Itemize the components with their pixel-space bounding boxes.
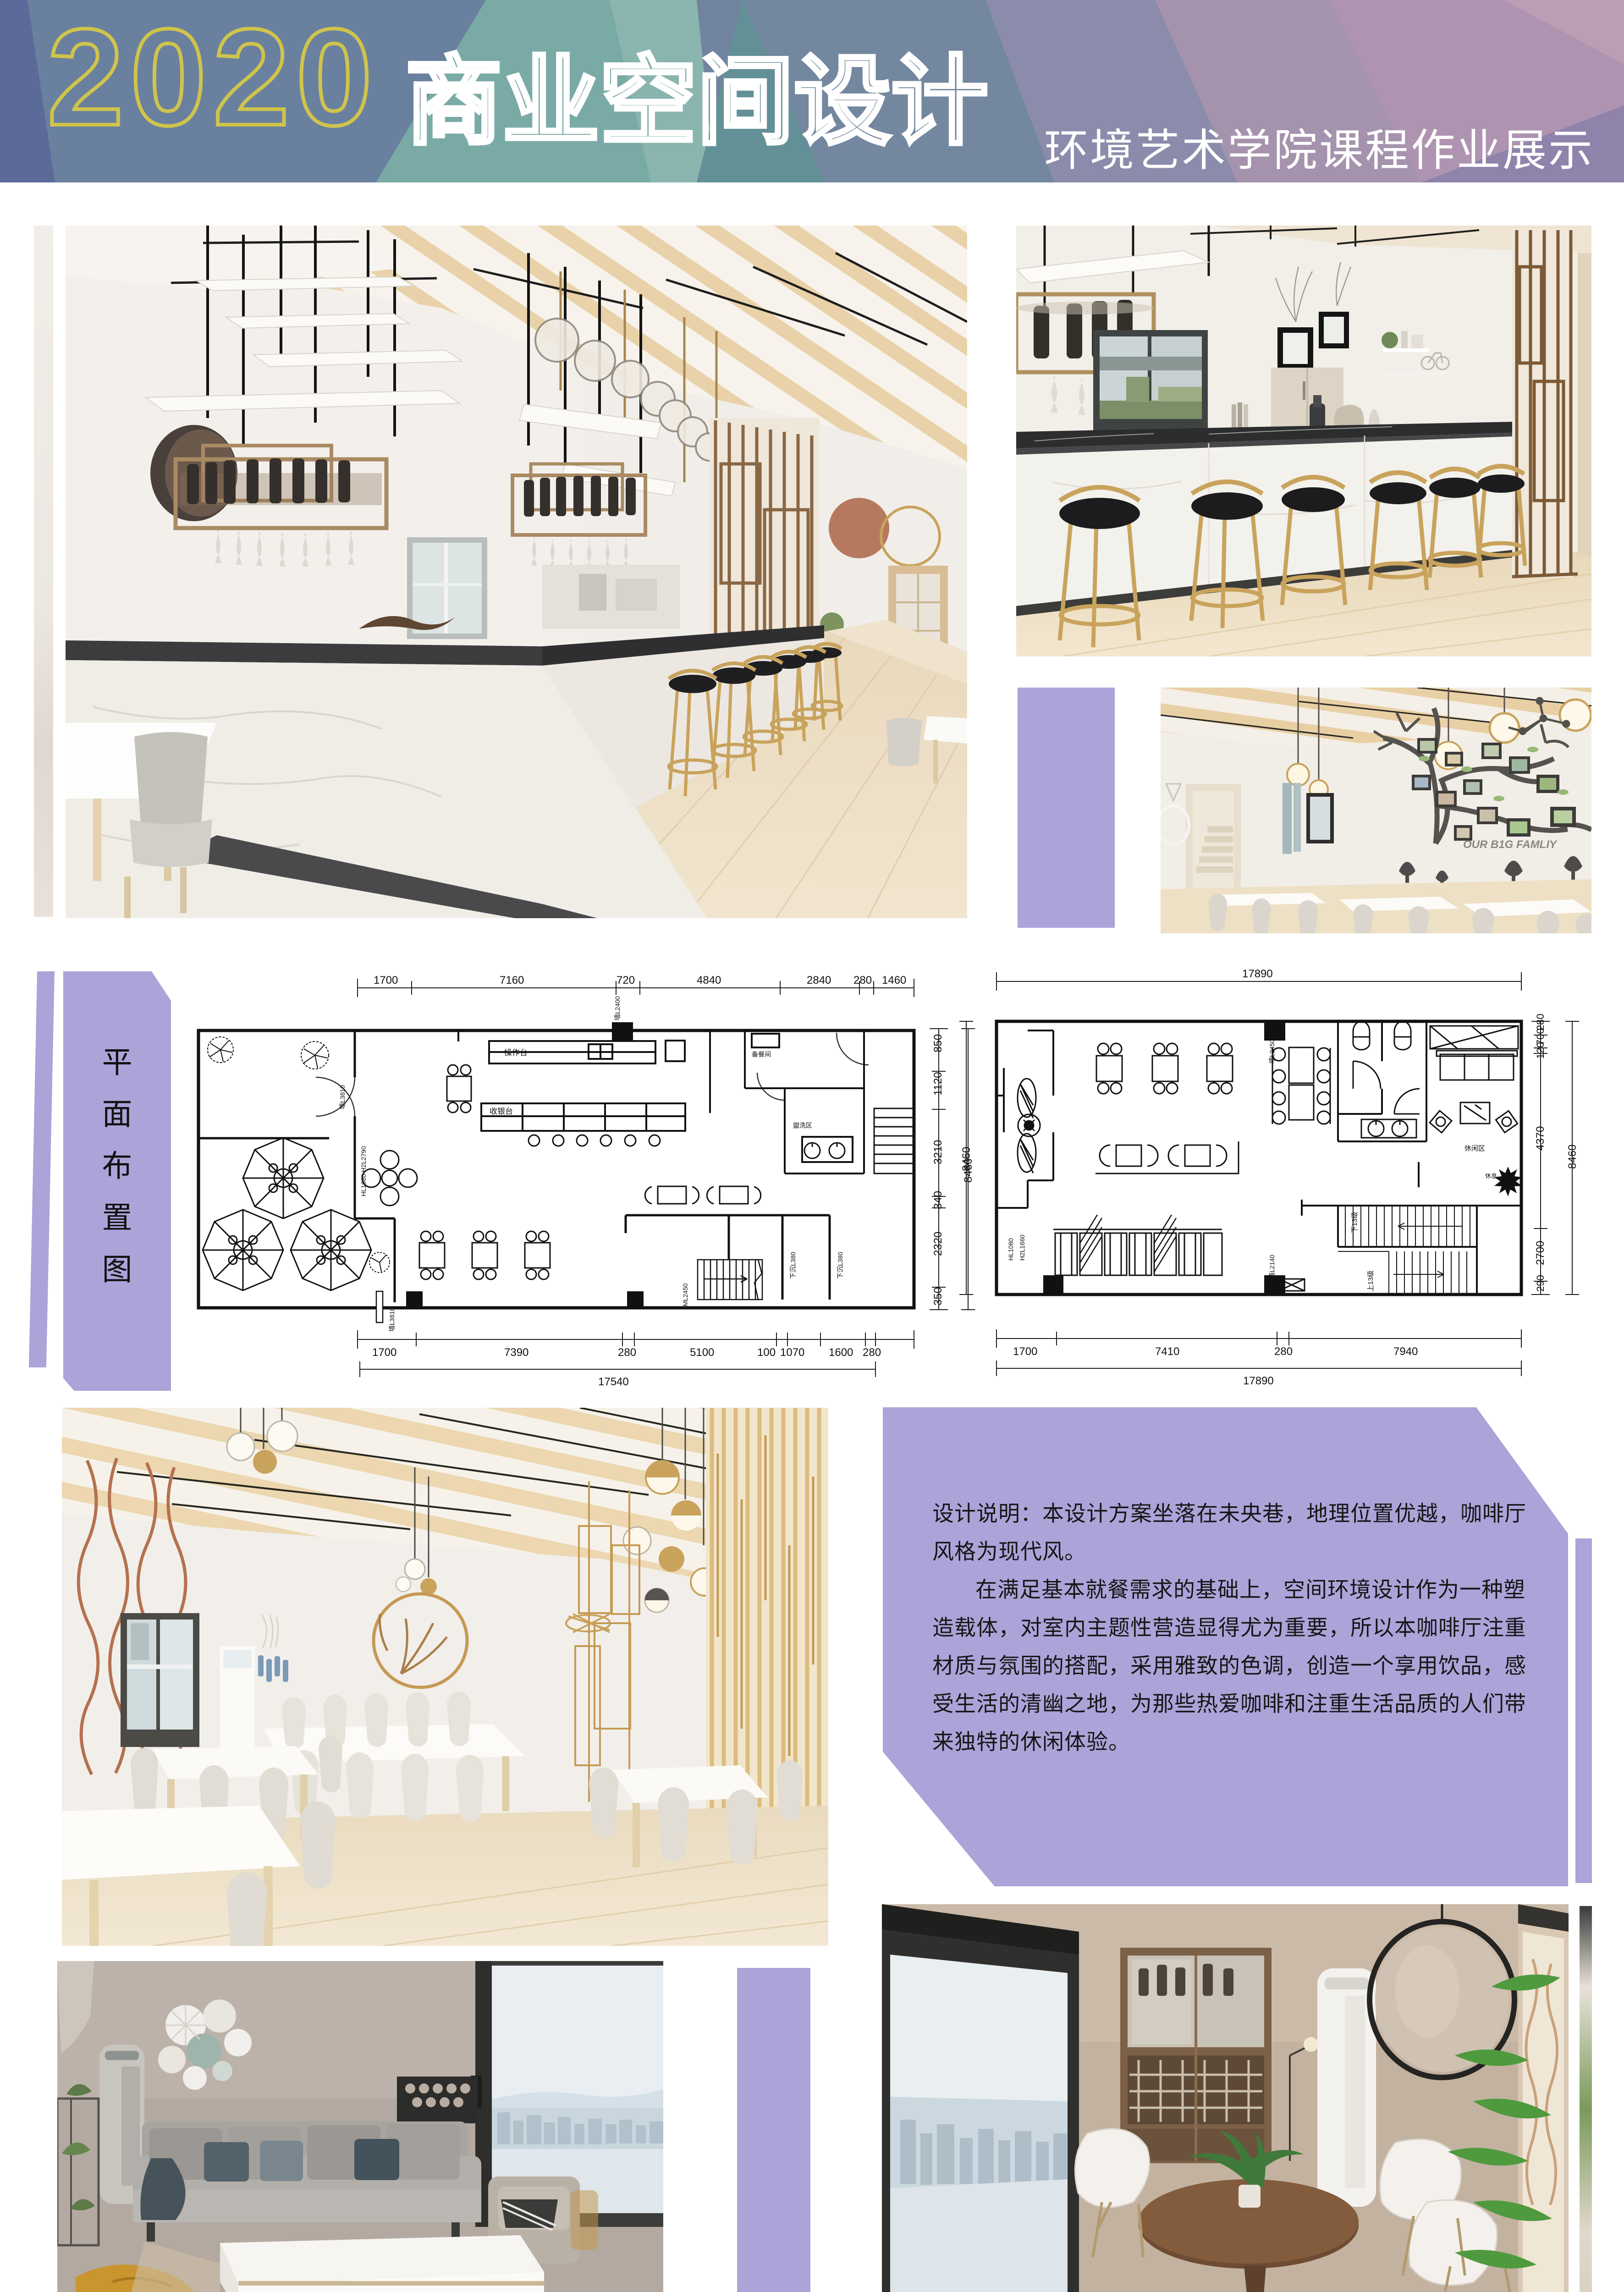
svg-text:1700: 1700: [372, 1346, 396, 1359]
svg-text:下沉L380: 下沉L380: [837, 1252, 844, 1279]
svg-text:1600: 1600: [829, 1346, 853, 1359]
svg-text:100: 100: [757, 1346, 776, 1359]
svg-text:墙L3810: 墙L3810: [388, 1307, 396, 1332]
svg-text:340: 340: [932, 1191, 944, 1209]
svg-text:17890: 17890: [1242, 968, 1273, 980]
svg-text:850: 850: [932, 1034, 944, 1052]
svg-text:280: 280: [1274, 1345, 1293, 1358]
svg-text:1120: 1120: [932, 1072, 944, 1096]
svg-text:盥洗区: 盥洗区: [793, 1122, 812, 1129]
svg-text:墙L3810: 墙L3810: [339, 1085, 346, 1109]
svg-text:4370: 4370: [1534, 1126, 1547, 1151]
svg-text:5100: 5100: [690, 1346, 714, 1359]
svg-text:8460: 8460: [1566, 1145, 1579, 1169]
svg-text:350: 350: [932, 1287, 944, 1306]
svg-text:H2L1660: H2L1660: [1018, 1234, 1026, 1261]
svg-text:1070: 1070: [780, 1346, 804, 1359]
svg-text:280: 280: [863, 1346, 881, 1359]
svg-text:720: 720: [617, 974, 635, 986]
svg-text:墙L2400: 墙L2400: [614, 996, 621, 1020]
svg-text:280: 280: [1535, 1014, 1546, 1030]
svg-text:290: 290: [1535, 1275, 1546, 1292]
svg-text:120: 120: [1535, 1042, 1546, 1059]
svg-text:2840: 2840: [807, 974, 831, 986]
svg-text:280: 280: [853, 974, 872, 986]
svg-text:4840: 4840: [697, 974, 721, 986]
svg-text:1460: 1460: [882, 974, 906, 986]
svg-text:休闲区: 休闲区: [1464, 1145, 1485, 1152]
svg-text:2700: 2700: [1534, 1241, 1547, 1265]
svg-text:2320: 2320: [932, 1232, 944, 1256]
svg-text:收银台: 收银台: [490, 1107, 513, 1116]
svg-text:休息: 休息: [1485, 1173, 1497, 1179]
svg-text:1700: 1700: [1013, 1345, 1037, 1358]
svg-text:HL1080 H2L2790: HL1080 H2L2790: [360, 1146, 367, 1196]
svg-text:7940: 7940: [1393, 1345, 1418, 1358]
svg-text:下13级: 下13级: [1351, 1212, 1359, 1233]
svg-text:操作台: 操作台: [504, 1048, 528, 1057]
svg-text:OUR B1G FAMLIY: OUR B1G FAMLIY: [1463, 838, 1558, 851]
svg-text:HL1080: HL1080: [1007, 1238, 1014, 1261]
svg-text:1700: 1700: [374, 974, 398, 986]
svg-text:ML2450: ML2450: [682, 1283, 689, 1306]
svg-text:备餐间: 备餐间: [752, 1051, 771, 1058]
svg-text:8460: 8460: [960, 1147, 973, 1171]
svg-text:280: 280: [618, 1346, 636, 1359]
svg-text:下沉L380: 下沉L380: [789, 1252, 797, 1279]
svg-text:17540: 17540: [598, 1376, 629, 1388]
svg-text:17890: 17890: [1243, 1375, 1274, 1387]
svg-text:墙L2140: 墙L2140: [1268, 1255, 1276, 1279]
svg-text:3210: 3210: [932, 1140, 944, 1164]
svg-text:墙L2450: 墙L2450: [1268, 1039, 1276, 1063]
svg-text:7160: 7160: [500, 974, 524, 986]
svg-text:上13级: 上13级: [1367, 1270, 1375, 1292]
svg-text:7390: 7390: [504, 1346, 528, 1359]
svg-text:7410: 7410: [1155, 1345, 1179, 1358]
